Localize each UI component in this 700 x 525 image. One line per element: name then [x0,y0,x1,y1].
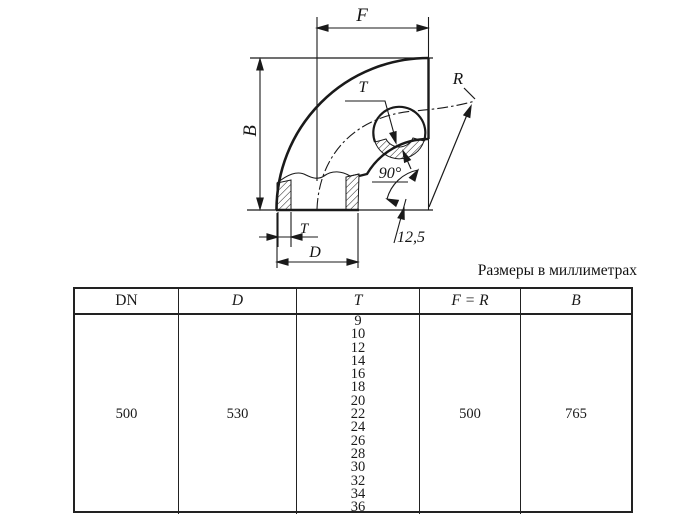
cell-t-list: 91012141618202224262830323436 [297,315,420,514]
units-note: Размеры в миллиметрах [478,262,637,280]
section-outer-circle [373,107,425,142]
right-wall-hatched [346,174,359,210]
t-dim-label: T [300,221,310,237]
d-label: D [308,244,321,261]
r-label: R [452,69,464,88]
cell-fr: 500 [420,315,521,514]
col-header-fr: F = R [420,289,521,315]
dimensions-table: DN D T F = R B 500 530 91012141618202224… [73,287,633,513]
col-header-t: T [297,289,420,315]
f-label: F [355,5,368,26]
elbow-outline [247,17,475,210]
t-dimension [259,212,318,247]
cell-dn: 500 [75,315,179,514]
elbow-drawing: F B D T [0,0,700,285]
t-value: 36 [351,501,366,514]
left-wall-hatched [277,180,291,210]
b-label: B [240,125,261,137]
f-dimension [317,17,429,58]
page: F B D T [0,0,700,525]
t-section-label: T [359,79,369,96]
bevel-label: 12,5 [397,229,425,246]
wall-sections [277,174,359,210]
midspan-section [373,107,425,159]
col-header-b: B [521,289,631,315]
col-header-dn: DN [75,289,179,315]
col-header-d: D [179,289,297,315]
cell-b: 765 [521,315,631,514]
cell-d: 530 [179,315,297,514]
angle-label: 90° [379,165,402,182]
